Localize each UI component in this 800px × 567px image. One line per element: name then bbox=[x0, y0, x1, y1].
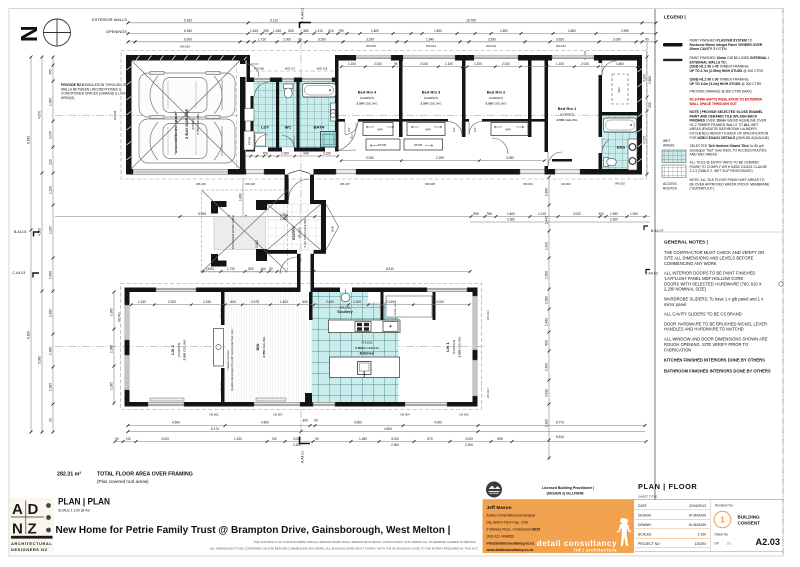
svg-text:SHEET TITLE: SHEET TITLE bbox=[638, 495, 658, 499]
svg-text:DATE: DATE bbox=[638, 504, 648, 508]
svg-text:OF: OF bbox=[715, 542, 720, 546]
svg-text:15.760: 15.760 bbox=[466, 19, 476, 23]
svg-text:W6.010: W6.010 bbox=[615, 182, 625, 186]
svg-text:STOR: STOR bbox=[414, 143, 423, 147]
svg-text:HANDLES AND HARDWARE TO MATCHD: HANDLES AND HARDWARE TO MATCHD bbox=[664, 327, 744, 332]
svg-text:400: 400 bbox=[260, 267, 266, 271]
svg-text:90: 90 bbox=[115, 437, 119, 441]
svg-text:2.550 CEILING: 2.550 CEILING bbox=[357, 102, 379, 106]
svg-text:5.170: 5.170 bbox=[211, 427, 219, 431]
svg-text:810: 810 bbox=[473, 127, 477, 132]
svg-text:1.500: 1.500 bbox=[545, 271, 549, 279]
svg-text:4.500: 4.500 bbox=[354, 421, 362, 425]
svg-text:W6.008: W6.008 bbox=[425, 182, 435, 186]
svg-text:1.980: 1.980 bbox=[49, 347, 53, 355]
svg-text:COMMENCING ANY WORK: COMMENCING ANY WORK bbox=[664, 261, 717, 266]
svg-text:Araha Lmt/architectural design: Araha Lmt/architectural designer bbox=[487, 514, 537, 518]
svg-text:90: 90 bbox=[298, 38, 302, 42]
svg-text:AREA(S): AREA(S) bbox=[61, 96, 74, 100]
svg-text:(CARPET): (CARPET) bbox=[560, 113, 575, 117]
svg-text:1.590: 1.590 bbox=[610, 212, 618, 216]
svg-text:4.500: 4.500 bbox=[172, 421, 180, 425]
svg-text:3.725: 3.725 bbox=[643, 136, 647, 144]
svg-text:D6.009: D6.009 bbox=[561, 182, 570, 186]
svg-text:1.980: 1.980 bbox=[110, 345, 114, 353]
svg-text:N: N bbox=[12, 521, 23, 538]
svg-text:740: 740 bbox=[271, 437, 277, 441]
svg-text:LIV 1: LIV 1 bbox=[445, 341, 450, 351]
svg-text:90: 90 bbox=[314, 419, 318, 423]
svg-text:OPENINGS: OPENINGS bbox=[106, 29, 127, 34]
svg-text:2 BAY GARAGE: 2 BAY GARAGE bbox=[184, 109, 189, 139]
svg-text:Kitchen: Kitchen bbox=[360, 351, 375, 356]
svg-text:DOOR HARDWARE TO BE BRUSHED NI: DOOR HARDWARE TO BE BRUSHED NICKEL LEVER bbox=[664, 321, 767, 326]
svg-text:282.31 m²: 282.31 m² bbox=[57, 472, 81, 478]
svg-text:DOORS WITH SELECTED HARDWARE (: DOORS WITH SELECTED HARDWARE (760, 810 X bbox=[664, 281, 762, 286]
svg-text:630: 630 bbox=[288, 29, 294, 33]
svg-text:2.345: 2.345 bbox=[203, 300, 211, 304]
svg-text:ROUGH OPENING, SITE VERIFY PRI: ROUGH OPENING, SITE VERIFY PRIOR TO bbox=[664, 342, 749, 347]
svg-text:3.920: 3.920 bbox=[556, 38, 564, 42]
svg-text:600: 600 bbox=[230, 300, 236, 304]
svg-text:TOTAL FLOOR AREA OVER FRAMING: TOTAL FLOOR AREA OVER FRAMING bbox=[97, 472, 193, 478]
svg-text:2.010: 2.010 bbox=[374, 62, 382, 66]
svg-text:810: 810 bbox=[347, 127, 351, 132]
svg-text:1.015: 1.015 bbox=[538, 212, 546, 216]
svg-text:3.810: 3.810 bbox=[545, 389, 549, 397]
svg-text:1.490: 1.490 bbox=[545, 242, 549, 250]
svg-text:1.985: 1.985 bbox=[49, 383, 53, 391]
svg-text:PLAN | PLAN: PLAN | PLAN bbox=[58, 497, 110, 507]
svg-text:Z: Z bbox=[28, 521, 37, 538]
svg-text:90: 90 bbox=[394, 62, 398, 66]
svg-text:2.300: 2.300 bbox=[391, 443, 399, 447]
svg-text:ROUTES: ROUTES bbox=[663, 186, 678, 190]
svg-text:(TILED): (TILED) bbox=[298, 228, 302, 239]
svg-text:Revision No.: Revision No. bbox=[715, 504, 734, 508]
svg-text:90: 90 bbox=[269, 267, 273, 271]
svg-text:2.050: 2.050 bbox=[506, 156, 514, 160]
svg-text:A.A4.01: A.A4.01 bbox=[301, 451, 305, 463]
svg-text:1.985: 1.985 bbox=[110, 382, 114, 390]
svg-text:W6.007: W6.007 bbox=[340, 182, 350, 186]
svg-text:UP TO 2.7m (2.55m) HIGH STUDS: UP TO 2.7m (2.55m) HIGH STUDS @ 400 CTRS bbox=[690, 69, 764, 73]
svg-text:'LAYFLUSH' PANEL MDF HOLLOW CO: 'LAYFLUSH' PANEL MDF HOLLOW CORE bbox=[664, 276, 744, 281]
svg-text:3.995: 3.995 bbox=[643, 74, 647, 82]
svg-text:ALL CAVITY SLIDERS TO BE CS BR: ALL CAVITY SLIDERS TO BE CS BRAND bbox=[664, 312, 742, 317]
svg-text:3.020: 3.020 bbox=[391, 437, 399, 441]
svg-text:1.345: 1.345 bbox=[273, 29, 281, 33]
svg-text:1.210: 1.210 bbox=[315, 29, 323, 33]
svg-text:W0.013: W0.013 bbox=[486, 44, 496, 48]
svg-text:1.480: 1.480 bbox=[49, 271, 53, 279]
svg-text:250: 250 bbox=[263, 29, 269, 33]
svg-text:3.020: 3.020 bbox=[465, 437, 473, 441]
svg-text:20mm CAVITY SYSTEM: 20mm CAVITY SYSTEM bbox=[690, 47, 728, 51]
svg-text:90: 90 bbox=[645, 38, 649, 42]
svg-text:2.1.3 (TABLE 2. WET SLIP RESIS: 2.1.3 (TABLE 2. WET SLIP RESISTANCE) bbox=[690, 169, 753, 173]
svg-text:1.800: 1.800 bbox=[507, 212, 515, 216]
svg-text:WC: WC bbox=[285, 125, 292, 130]
svg-text:750: 750 bbox=[262, 152, 268, 156]
svg-text:STOR: STOR bbox=[378, 143, 387, 147]
svg-text:Bed Rm 3: Bed Rm 3 bbox=[422, 90, 441, 95]
svg-text:PROJECT NO: PROJECT NO bbox=[638, 542, 660, 546]
svg-text:B.A4.02: B.A4.02 bbox=[14, 230, 27, 234]
svg-text:1.440: 1.440 bbox=[545, 216, 549, 224]
svg-text:WR: WR bbox=[377, 128, 383, 132]
svg-text:8.410: 8.410 bbox=[386, 267, 394, 271]
svg-text:C.A4.03: C.A4.03 bbox=[13, 271, 26, 275]
svg-text:9 Wellsey Place, Christchurch: 9 Wellsey Place, Christchurch 8025 bbox=[487, 528, 541, 532]
svg-text:WIR: WIR bbox=[331, 225, 335, 232]
svg-text:("SUPERFLEX"): ("SUPERFLEX") bbox=[690, 187, 714, 191]
svg-text:CONSENT: CONSENT bbox=[738, 521, 761, 526]
svg-text:WARDROBE SLIDERS; To have 1 x: WARDROBE SLIDERS; To have 1 x gib panel … bbox=[664, 297, 764, 302]
svg-text:1.100: 1.100 bbox=[348, 62, 356, 66]
svg-text:740: 740 bbox=[125, 437, 131, 441]
svg-text:N: N bbox=[16, 25, 42, 42]
svg-text:23: 23 bbox=[727, 542, 731, 546]
svg-text:(NZ) 021 0494856: (NZ) 021 0494856 bbox=[487, 535, 515, 539]
svg-text:1.800: 1.800 bbox=[568, 29, 576, 33]
svg-text:ltd | architecture: ltd | architecture bbox=[574, 548, 617, 553]
svg-text:WR: WR bbox=[617, 87, 621, 93]
svg-text:STOR: STOR bbox=[248, 136, 252, 145]
svg-text:2.550 CEILING: 2.550 CEILING bbox=[196, 113, 200, 135]
svg-text:"unconditioned space": "unconditioned space" bbox=[173, 111, 178, 155]
svg-text:870: 870 bbox=[427, 437, 433, 441]
svg-text:Bed Rm 1: Bed Rm 1 bbox=[558, 106, 577, 111]
svg-text:3.020: 3.020 bbox=[436, 300, 444, 304]
svg-text:2.300: 2.300 bbox=[280, 217, 288, 221]
svg-text:2.550 CEILING: 2.550 CEILING bbox=[262, 336, 266, 358]
svg-text:300: 300 bbox=[302, 419, 308, 423]
svg-text:W0.002: W0.002 bbox=[486, 388, 490, 398]
svg-text:5.110: 5.110 bbox=[270, 19, 278, 23]
svg-text:DESIGN: DESIGN bbox=[638, 514, 652, 518]
svg-text:1.720: 1.720 bbox=[227, 267, 235, 271]
svg-text:W/D CAV: W/D CAV bbox=[220, 306, 224, 320]
svg-text:6.180: 6.180 bbox=[184, 29, 192, 33]
svg-text:www.detailconsultancy.co.nz: www.detailconsultancy.co.nz bbox=[486, 548, 534, 552]
svg-text:3.200: 3.200 bbox=[318, 38, 326, 42]
svg-text:1.000: 1.000 bbox=[281, 152, 289, 156]
svg-text:2.075: 2.075 bbox=[251, 300, 259, 304]
svg-text:2.000: 2.000 bbox=[168, 300, 176, 304]
svg-text:600: 600 bbox=[302, 300, 308, 304]
svg-text:2.290: 2.290 bbox=[436, 156, 444, 160]
svg-text:COVERED ROOF AREA: COVERED ROOF AREA bbox=[231, 214, 235, 249]
svg-text:W0.012: W0.012 bbox=[556, 44, 566, 48]
svg-text:1.070: 1.070 bbox=[49, 131, 53, 139]
svg-text:1.280: 1.280 bbox=[359, 437, 367, 441]
svg-text:1.100: 1.100 bbox=[353, 300, 361, 304]
svg-text:590: 590 bbox=[497, 437, 503, 441]
svg-text:1.100: 1.100 bbox=[445, 62, 453, 66]
svg-text:1.800: 1.800 bbox=[371, 29, 379, 33]
svg-text:90: 90 bbox=[49, 418, 53, 422]
svg-text:(Plus covered roof areas): (Plus covered roof areas) bbox=[97, 479, 149, 484]
svg-text:BUILDING: BUILDING bbox=[738, 515, 761, 520]
svg-text:2.010: 2.010 bbox=[581, 62, 589, 66]
svg-text:THE COPYRIGHT OF THIS DOCUMENT: THE COPYRIGHT OF THIS DOCUMENT AND ALL D… bbox=[253, 540, 476, 544]
svg-text:double sided gas fire with hor: double sided gas fire with horizontal fl… bbox=[230, 329, 234, 391]
svg-text:W/D 017: W/D 017 bbox=[285, 67, 296, 71]
svg-text:2.400: 2.400 bbox=[326, 300, 334, 304]
svg-text:LEGEND |: LEGEND | bbox=[664, 15, 686, 20]
svg-text:ALL WINDOW AND DOOR DIMENSIONS: ALL WINDOW AND DOOR DIMENSIONS SHOWN ARE bbox=[664, 337, 768, 342]
svg-text:8.510: 8.510 bbox=[556, 435, 564, 439]
svg-text:8.770: 8.770 bbox=[556, 421, 564, 425]
svg-text:WALL SPACE THROUGH OUT: WALL SPACE THROUGH OUT bbox=[690, 102, 737, 106]
svg-text:810: 810 bbox=[452, 127, 456, 132]
svg-text:1.240: 1.240 bbox=[138, 300, 146, 304]
svg-text:3.300: 3.300 bbox=[255, 240, 259, 248]
svg-text:600: 600 bbox=[545, 340, 549, 346]
svg-text:2,200 NOMINAL SIZE): 2,200 NOMINAL SIZE) bbox=[664, 287, 707, 292]
svg-text:PLAN | FLOOR: PLAN | FLOOR bbox=[638, 482, 697, 491]
svg-text:1.080: 1.080 bbox=[545, 296, 549, 304]
svg-text:455: 455 bbox=[49, 69, 53, 75]
svg-text:UP TO 3.0m (3.2m) HIGH STUDS @: UP TO 3.0m (3.2m) HIGH STUDS @ 300 CTRS bbox=[690, 82, 763, 86]
svg-text:DRAWN: DRAWN bbox=[638, 523, 651, 527]
svg-text:500: 500 bbox=[648, 102, 652, 108]
svg-text:2.550m CEILING: 2.550m CEILING bbox=[355, 346, 379, 350]
svg-text:BATHROOM FINISHED INTERIORS DO: BATHROOM FINISHED INTERIORS DONE BY OTHE… bbox=[664, 369, 771, 374]
svg-text:W6.018: W6.018 bbox=[245, 182, 255, 186]
svg-text:(CARPET): (CARPET) bbox=[452, 340, 456, 355]
svg-text:3.2m STUD CEILING: 3.2m STUD CEILING bbox=[303, 218, 307, 248]
svg-text:1.400: 1.400 bbox=[280, 300, 288, 304]
svg-text:940: 940 bbox=[303, 152, 309, 156]
svg-text:(CARPET): (CARPET) bbox=[360, 96, 375, 100]
svg-text:(CARPET): (CARPET) bbox=[489, 96, 504, 100]
svg-text:mirror panel: mirror panel bbox=[664, 302, 686, 307]
svg-text:4.500: 4.500 bbox=[384, 427, 392, 431]
svg-text:Bed Rm 4: Bed Rm 4 bbox=[358, 90, 377, 95]
svg-text:D6.002: D6.002 bbox=[209, 413, 218, 417]
svg-text:6.000: 6.000 bbox=[184, 38, 192, 42]
svg-text:Licensed Building Practitioner: Licensed Building Practitioner | bbox=[542, 486, 595, 490]
svg-text:1.940: 1.940 bbox=[426, 38, 434, 42]
svg-text:1.000: 1.000 bbox=[630, 212, 638, 216]
svg-text:2.300: 2.300 bbox=[610, 218, 618, 222]
svg-text:W6.004: W6.004 bbox=[523, 182, 533, 186]
svg-text:3.290: 3.290 bbox=[366, 38, 374, 42]
svg-text:(CARPET): (CARPET) bbox=[424, 96, 439, 100]
svg-text:1.985: 1.985 bbox=[49, 309, 53, 317]
svg-text:W0.014: W0.014 bbox=[426, 44, 436, 48]
svg-text:A2.03: A2.03 bbox=[755, 537, 780, 547]
svg-text:1.025: 1.025 bbox=[49, 226, 53, 234]
svg-text:info@detailconsultancy.co.nz: info@detailconsultancy.co.nz bbox=[487, 542, 535, 546]
svg-text:2.300: 2.300 bbox=[465, 443, 473, 447]
svg-text:W0.016: W0.016 bbox=[180, 45, 190, 49]
svg-text:220: 220 bbox=[49, 159, 53, 165]
svg-text:C.A4.03: C.A4.03 bbox=[645, 272, 658, 276]
svg-text:(CARPET): (CARPET) bbox=[177, 343, 181, 358]
svg-text:WR: WR bbox=[505, 128, 511, 132]
svg-text:DIN: DIN bbox=[255, 343, 260, 350]
svg-text:4.670: 4.670 bbox=[38, 111, 42, 119]
svg-text:D6.004: D6.004 bbox=[400, 413, 409, 417]
svg-text:5.080: 5.080 bbox=[38, 356, 42, 364]
svg-text:1.320: 1.320 bbox=[234, 437, 242, 441]
svg-text:2.550 CEILING: 2.550 CEILING bbox=[486, 102, 508, 106]
svg-text:2.125: 2.125 bbox=[386, 300, 394, 304]
svg-text:AND WET AREAS: AND WET AREAS bbox=[690, 153, 718, 157]
svg-text:W6.019: W6.019 bbox=[196, 182, 206, 186]
svg-text:4.000: 4.000 bbox=[434, 421, 442, 425]
svg-text:WR: WR bbox=[425, 128, 431, 132]
svg-text:(TILES): (TILES) bbox=[362, 341, 373, 345]
svg-text:LDY: LDY bbox=[261, 125, 269, 130]
svg-text:300: 300 bbox=[598, 212, 604, 216]
svg-text:22/04/2013: 22/04/2013 bbox=[689, 504, 706, 508]
svg-text:1.985: 1.985 bbox=[110, 308, 114, 316]
svg-text:ENS: ENS bbox=[617, 145, 626, 150]
svg-text:2.300: 2.300 bbox=[545, 363, 549, 371]
svg-text:3.020: 3.020 bbox=[161, 437, 169, 441]
svg-text:SCALES: SCALES bbox=[638, 533, 652, 537]
svg-text:(TILES): (TILES) bbox=[340, 306, 351, 310]
svg-text:(400): (400) bbox=[206, 267, 213, 271]
svg-text:1.480: 1.480 bbox=[239, 193, 243, 201]
svg-text:2.990: 2.990 bbox=[621, 29, 629, 33]
svg-text:785: 785 bbox=[486, 212, 492, 216]
svg-text:Dip. ARCH TECH Dip. CAD: Dip. ARCH TECH Dip. CAD bbox=[487, 521, 529, 525]
svg-text:JK MASON: JK MASON bbox=[689, 523, 707, 527]
svg-text:90: 90 bbox=[315, 437, 319, 441]
svg-text:2.010: 2.010 bbox=[420, 62, 428, 66]
svg-text:800: 800 bbox=[248, 267, 254, 271]
svg-text:1.800: 1.800 bbox=[616, 62, 624, 66]
svg-text:B.A4.02: B.A4.02 bbox=[651, 229, 664, 233]
svg-text:SCALE 1:100 @ A3: SCALE 1:100 @ A3 bbox=[58, 509, 90, 513]
svg-text:2.550 CEILING: 2.550 CEILING bbox=[557, 118, 579, 122]
svg-text:1.800: 1.800 bbox=[648, 76, 652, 84]
svg-text:EXTERIOR WALLS: EXTERIOR WALLS bbox=[92, 17, 127, 22]
svg-text:1.800: 1.800 bbox=[434, 29, 442, 33]
svg-text:3.020: 3.020 bbox=[573, 212, 581, 216]
svg-text:2.550 CEILING: 2.550 CEILING bbox=[421, 102, 443, 106]
svg-text:AREAS: AREAS bbox=[663, 143, 675, 147]
svg-text:DESIGNERS NZ: DESIGNERS NZ bbox=[11, 547, 48, 552]
svg-text:1.545: 1.545 bbox=[250, 29, 258, 33]
svg-text:1.480: 1.480 bbox=[545, 188, 549, 196]
svg-text:Sheet No: Sheet No bbox=[715, 533, 729, 537]
svg-text:Bed Rm 2: Bed Rm 2 bbox=[487, 90, 506, 95]
svg-text:1.900: 1.900 bbox=[545, 419, 549, 427]
svg-text:Jeff Mason: Jeff Mason bbox=[487, 505, 512, 511]
svg-text:2.030: 2.030 bbox=[366, 156, 374, 160]
svg-text:3.290: 3.290 bbox=[488, 38, 496, 42]
svg-text:FABRICATION: FABRICATION bbox=[664, 347, 691, 352]
svg-text:THE CONTRACTOR MUST CHECK AND: THE CONTRACTOR MUST CHECK AND VERIFY ON bbox=[664, 250, 764, 255]
svg-text:BATH: BATH bbox=[314, 125, 325, 130]
svg-text:1.220: 1.220 bbox=[49, 186, 53, 194]
svg-text:ARCHITECTURAL: ARCHITECTURAL bbox=[11, 541, 52, 546]
svg-text:W/D 018: W/D 018 bbox=[317, 67, 328, 71]
svg-text:W0.015: W0.015 bbox=[366, 44, 376, 48]
svg-text:D6.005: D6.005 bbox=[459, 413, 468, 417]
svg-text:1.100: 1.100 bbox=[556, 62, 564, 66]
svg-text:GENERAL NOTES |: GENERAL NOTES | bbox=[664, 240, 708, 246]
svg-text:5.595: 5.595 bbox=[198, 212, 206, 216]
svg-text:1.800: 1.800 bbox=[500, 29, 508, 33]
svg-text:1.710: 1.710 bbox=[258, 38, 266, 42]
svg-text:(CONC): (CONC) bbox=[191, 118, 195, 129]
svg-text:1.000: 1.000 bbox=[283, 38, 291, 42]
svg-text:D: D bbox=[28, 501, 39, 518]
svg-text:1.985: 1.985 bbox=[49, 98, 53, 106]
svg-text:FOR NZBC/ E3/AS1 DETAILS |(SKB: FOR NZBC/ E3/AS1 DETAILS |(SKB BD AQUALI… bbox=[690, 136, 770, 140]
svg-text:A: A bbox=[12, 501, 23, 518]
svg-text:JK MASON: JK MASON bbox=[689, 514, 707, 518]
svg-text:(DESIGN 2) No.100048: (DESIGN 2) No.100048 bbox=[547, 492, 584, 496]
svg-text:ALL INTERIOR DOORS TO BE PAINT: ALL INTERIOR DOORS TO BE PAINT FINISHED bbox=[664, 271, 755, 276]
svg-text:790: 790 bbox=[338, 29, 344, 33]
svg-text:610: 610 bbox=[328, 29, 334, 33]
svg-text:SITE ALL DIMENSIONS AND LEVELS: SITE ALL DIMENSIONS AND LEVELS BEFORE bbox=[664, 255, 754, 260]
svg-text:2.220: 2.220 bbox=[323, 152, 331, 156]
svg-text:2.010: 2.010 bbox=[502, 62, 510, 66]
svg-text:ENTRY: ENTRY bbox=[291, 226, 296, 240]
svg-text:A.A4.01: A.A4.01 bbox=[301, 7, 305, 19]
svg-text:1:100: 1:100 bbox=[698, 533, 707, 537]
svg-text:Scullery: Scullery bbox=[337, 309, 353, 314]
svg-text:5.160: 5.160 bbox=[184, 19, 192, 23]
svg-text:130294: 130294 bbox=[695, 542, 706, 546]
svg-text:W/D CAV: W/D CAV bbox=[220, 380, 224, 394]
svg-text:6.180: 6.180 bbox=[27, 136, 31, 144]
svg-text:D6.003: D6.003 bbox=[273, 413, 282, 417]
svg-text:KITCHEN FINISHED INTERIORS DON: KITCHEN FINISHED INTERIORS DONE BY OTHER… bbox=[664, 358, 765, 363]
svg-text:LIV 2: LIV 2 bbox=[170, 344, 175, 354]
svg-text:995: 995 bbox=[473, 212, 479, 216]
svg-text:2.000: 2.000 bbox=[613, 38, 621, 42]
svg-text:4.500: 4.500 bbox=[261, 421, 269, 425]
svg-text:2.550 CEILING: 2.550 CEILING bbox=[183, 339, 187, 361]
svg-text:2.300: 2.300 bbox=[507, 218, 515, 222]
svg-text:1.460: 1.460 bbox=[545, 318, 549, 326]
svg-text:1.100: 1.100 bbox=[474, 62, 482, 66]
svg-text:1: 1 bbox=[720, 516, 725, 525]
svg-text:2.550 CEILING: 2.550 CEILING bbox=[458, 336, 462, 358]
svg-text:D/S 098: D/S 098 bbox=[254, 67, 264, 71]
svg-text:680: 680 bbox=[303, 29, 309, 33]
svg-text:PROVIDE DWANGS @ 800 CTRS (MAX: PROVIDE DWANGS @ 800 CTRS (MAX) bbox=[690, 90, 752, 94]
svg-text:ALL DIMENSIONS TO BE CONFIRMED: ALL DIMENSIONS TO BE CONFIRMED ON SITE B… bbox=[210, 547, 478, 551]
svg-text:6.180: 6.180 bbox=[27, 331, 31, 339]
svg-text:New Home for Petrie Family Tru: New Home for Petrie Family Trust @ Bramp… bbox=[56, 525, 451, 536]
svg-text:W0.003: W0.003 bbox=[486, 310, 490, 320]
